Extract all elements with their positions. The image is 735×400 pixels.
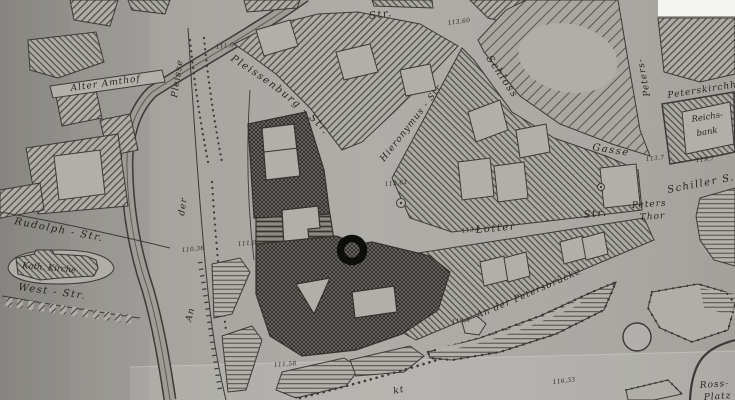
scan-white-patch xyxy=(658,0,735,16)
lotter-str-label-dash: - xyxy=(546,215,551,226)
map-canvas: Alter Amthof Pleisse der An Pleissenburg… xyxy=(0,0,735,400)
pond-circle xyxy=(623,323,651,351)
peters-thor-label-2: Thor xyxy=(640,211,666,223)
rossplatz-label-2: Platz xyxy=(703,391,732,400)
historical-city-map: Alter Amthof Pleisse der An Pleissenburg… xyxy=(0,0,735,400)
castle-courtyard xyxy=(352,286,397,318)
rossplatz-label-1: Ross- xyxy=(699,379,730,391)
